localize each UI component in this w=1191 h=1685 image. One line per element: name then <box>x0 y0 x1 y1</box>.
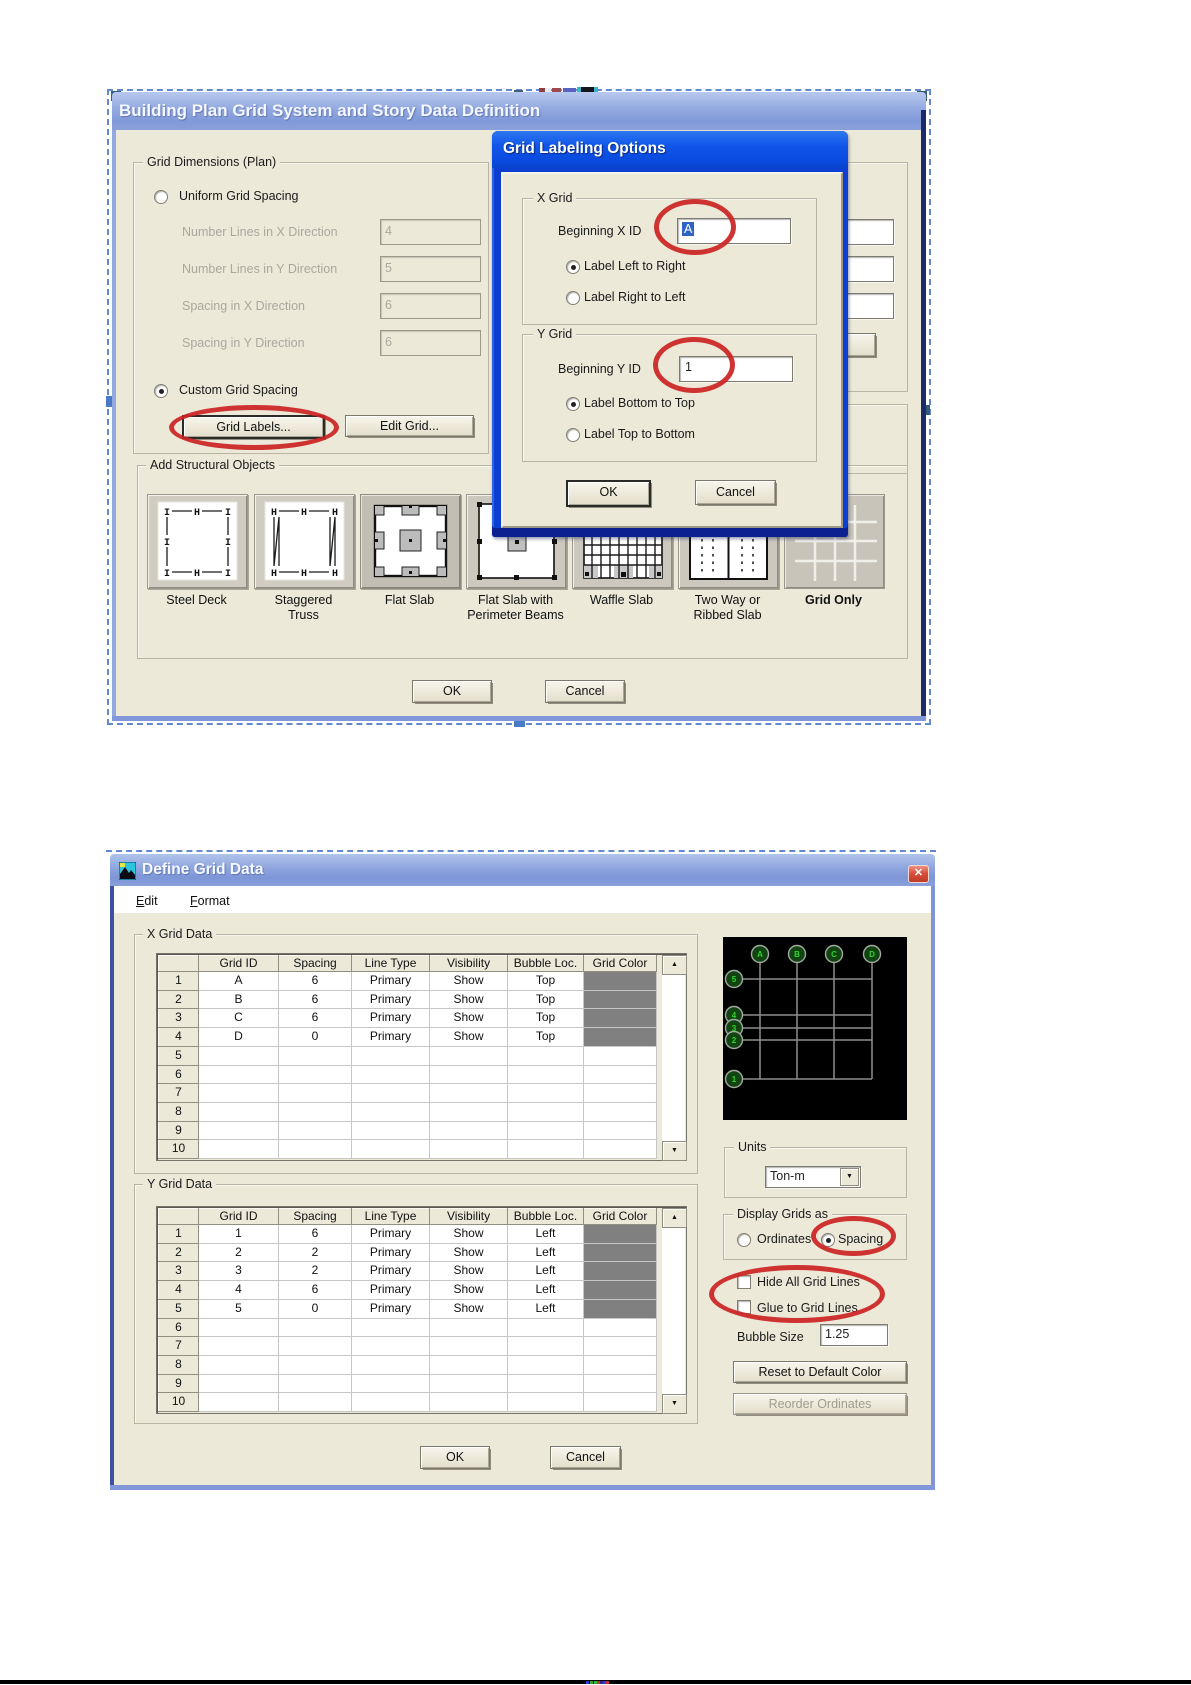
svg-text:I: I <box>164 569 170 580</box>
svg-text:I: I <box>225 569 231 580</box>
svg-text:2: 2 <box>732 1036 737 1045</box>
svg-text:D: D <box>869 950 875 959</box>
svg-text:3: 3 <box>732 1024 737 1033</box>
svg-text:H: H <box>271 508 277 519</box>
svg-text:4: 4 <box>732 1011 737 1020</box>
svg-text:C: C <box>831 950 837 959</box>
svg-text:H: H <box>332 569 338 580</box>
svg-text:I: I <box>164 508 170 519</box>
svg-text:I: I <box>225 538 231 549</box>
svg-text:5: 5 <box>732 975 737 984</box>
svg-text:B: B <box>794 950 800 959</box>
svg-text:H: H <box>271 569 277 580</box>
svg-text:A: A <box>757 950 763 959</box>
svg-text:I: I <box>225 508 231 519</box>
svg-text:H: H <box>194 508 200 519</box>
svg-text:I: I <box>164 538 170 549</box>
svg-text:H: H <box>332 508 338 519</box>
svg-text:H: H <box>301 569 307 580</box>
svg-text:1: 1 <box>732 1075 737 1084</box>
svg-text:H: H <box>194 569 200 580</box>
svg-text:H: H <box>301 508 307 519</box>
